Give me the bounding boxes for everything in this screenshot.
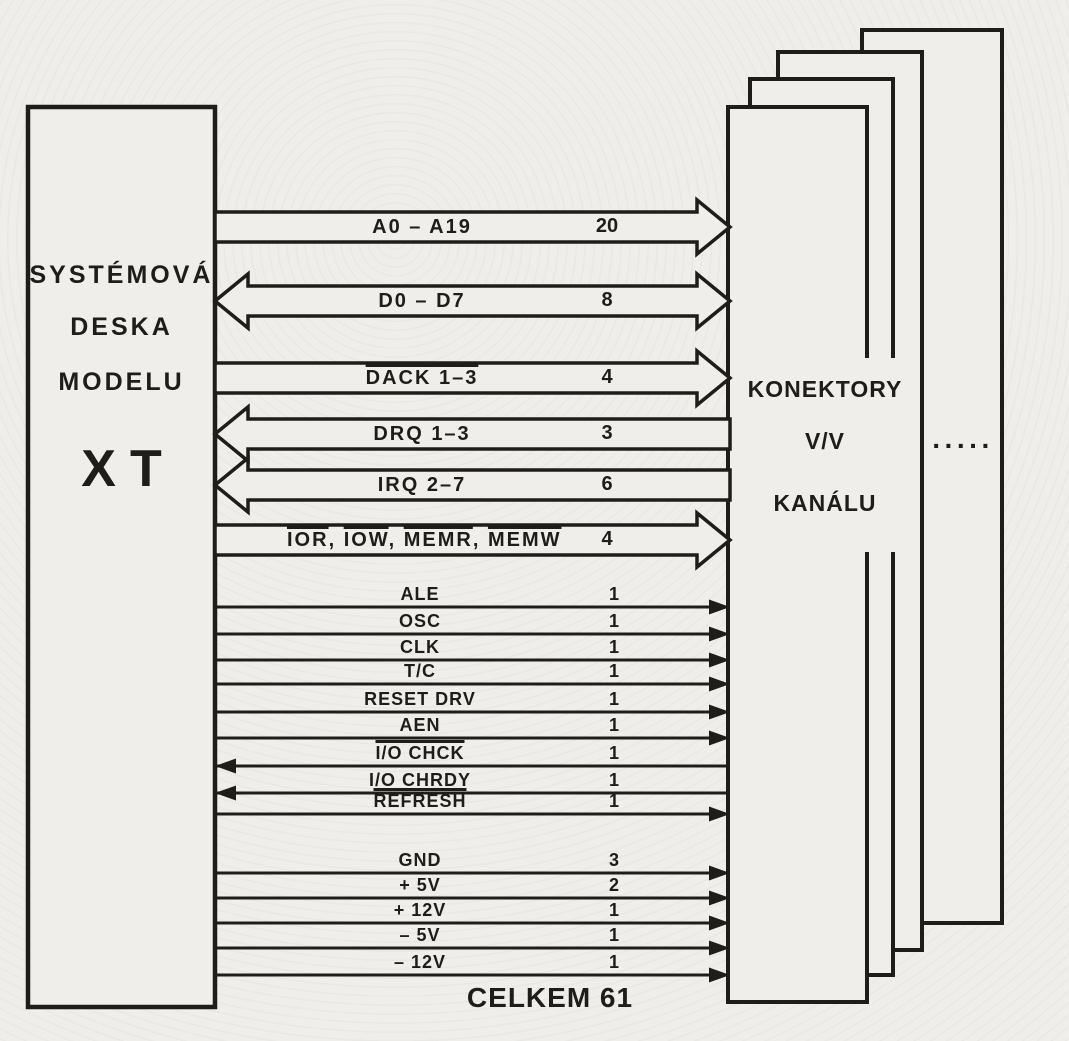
total-label: CELKEM 61 [455, 982, 645, 1014]
signal-label-6: AEN [295, 716, 545, 734]
signal-arrowhead-8 [215, 786, 236, 801]
signal-label-1: ALE [295, 585, 545, 603]
overlined-signal-name: DACK 1–3 [366, 367, 479, 389]
signal-label-8: I/O CHRDY [295, 771, 545, 789]
connector-title-block: KONEKTORY V/V KANÁLU [736, 358, 914, 552]
diagram-canvas: SYSTÉMOVÁ DESKA MODELU XT KONEKTORY V/V … [0, 0, 1069, 1041]
signal-label-7: I/O CHCK [295, 744, 545, 762]
signal-arrowhead-7 [215, 759, 236, 774]
signal-label-9: REFRESH [295, 792, 545, 810]
signal-count-label-11: 2 [582, 876, 646, 894]
signal-label-11: + 5V [295, 876, 545, 894]
system-board-title-line2: DESKA [28, 314, 215, 340]
signal-label-12: + 12V [295, 901, 545, 919]
signal-label-10: GND [295, 851, 545, 869]
bus-label-1: A0 – A19 [287, 215, 557, 239]
system-board-title-line1: SYSTÉMOVÁ [28, 262, 215, 288]
overlined-signal-name: MEMR [404, 529, 473, 551]
overlined-signal-name: I/O CHCK [376, 743, 465, 763]
signal-label-14: – 12V [295, 953, 545, 971]
signal-count-label-4: 1 [582, 662, 646, 680]
system-board-title-line3: MODELU [28, 369, 215, 395]
overlined-signal-name: IOW [344, 529, 389, 551]
signal-count-label-6: 1 [582, 716, 646, 734]
bus-count-label-2: 8 [572, 289, 642, 312]
signal-count-label-2: 1 [582, 612, 646, 630]
signal-label-2: OSC [295, 612, 545, 630]
signal-label-13: – 5V [295, 926, 545, 944]
signal-count-label-10: 3 [582, 851, 646, 869]
overlined-signal-name: REFRESH [373, 791, 466, 811]
connector-title-line1: KONEKTORY [736, 376, 914, 402]
bus-count-label-3: 4 [572, 366, 642, 389]
signal-count-label-1: 1 [582, 585, 646, 603]
bus-label-6: IOR, IOW, MEMR, MEMW [287, 528, 557, 552]
connector-title-line2: V/V [736, 428, 914, 454]
signal-label-4: T/C [295, 662, 545, 680]
bus-count-label-6: 4 [572, 528, 642, 551]
signal-count-label-3: 1 [582, 638, 646, 656]
signal-count-label-5: 1 [582, 690, 646, 708]
signal-count-label-7: 1 [582, 744, 646, 762]
overlined-signal-name: MEMW [488, 529, 562, 551]
system-board-outline [28, 107, 215, 1007]
bus-count-label-5: 6 [572, 473, 642, 496]
signal-label-3: CLK [295, 638, 545, 656]
bus-count-label-1: 20 [572, 215, 642, 238]
signal-count-label-13: 1 [582, 926, 646, 944]
bus-label-5: IRQ 2–7 [287, 473, 557, 497]
more-connectors-ellipsis: ····· [918, 430, 1008, 462]
signal-count-label-14: 1 [582, 953, 646, 971]
signal-count-label-12: 1 [582, 901, 646, 919]
system-board-model-label: XT [28, 443, 215, 495]
overlined-signal-name: IOR [287, 529, 329, 551]
bus-label-3: DACK 1–3 [287, 366, 557, 390]
bus-label-4: DRQ 1–3 [287, 422, 557, 446]
connector-card-1 [728, 107, 867, 1002]
signal-count-label-9: 1 [582, 792, 646, 810]
signal-label-5: RESET DRV [295, 690, 545, 708]
bus-count-label-4: 3 [572, 422, 642, 445]
signal-count-label-8: 1 [582, 771, 646, 789]
bus-label-2: D0 – D7 [287, 289, 557, 313]
connector-title-line3: KANÁLU [736, 490, 914, 516]
